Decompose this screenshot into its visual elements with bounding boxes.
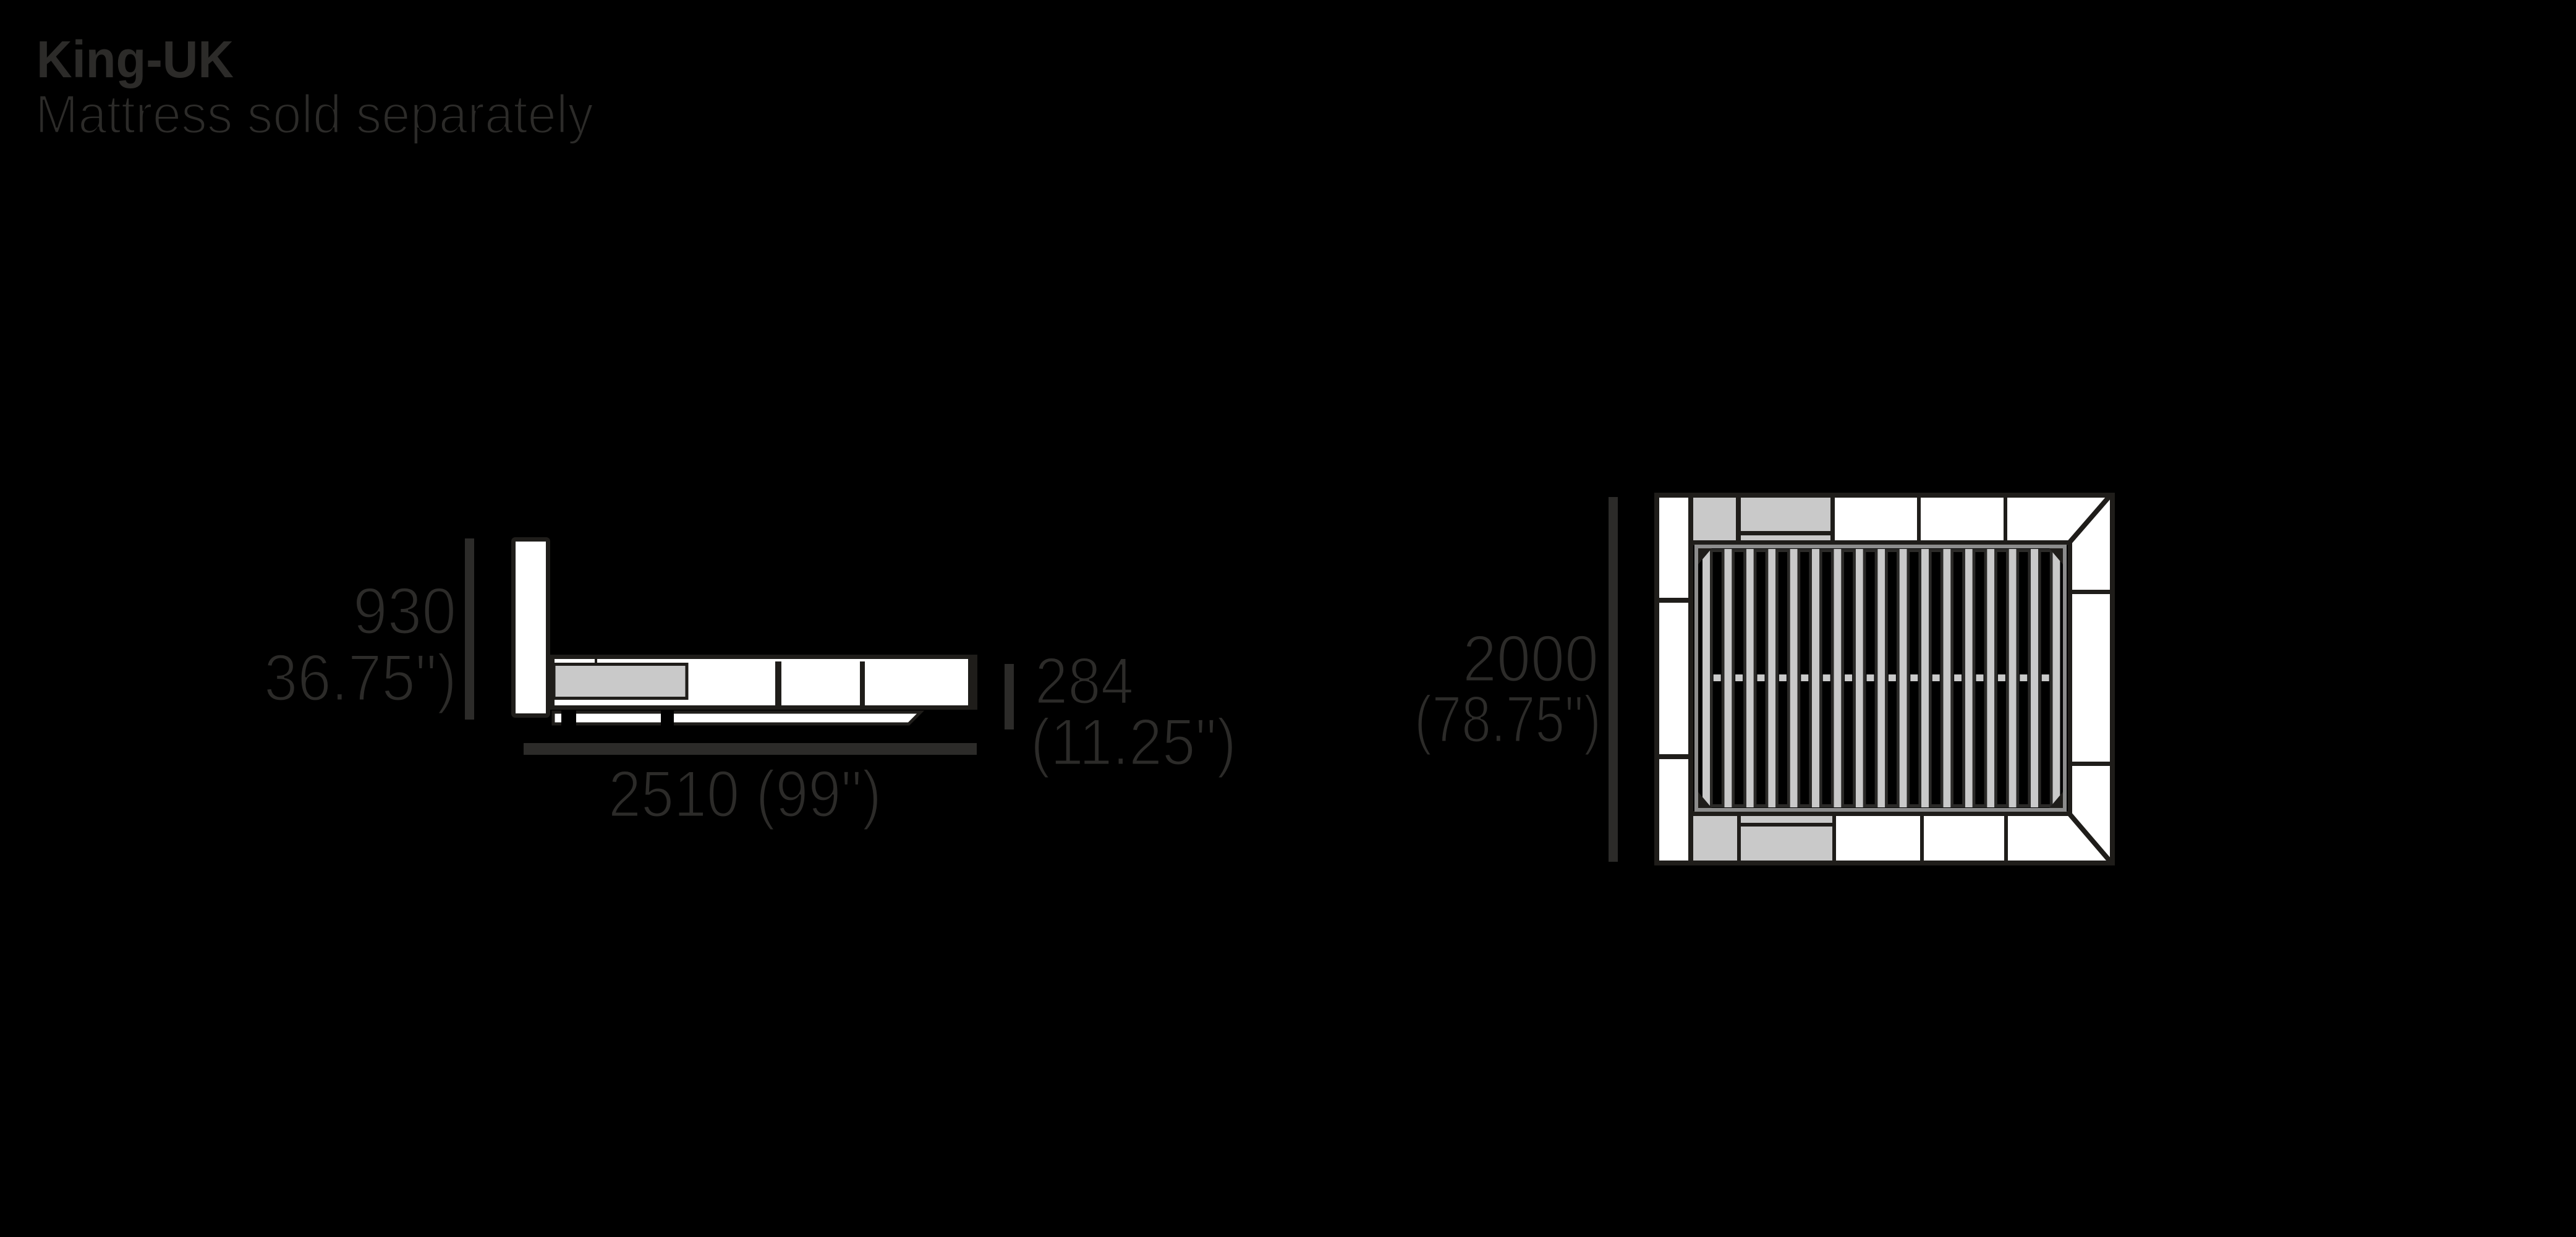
svg-text:36.75"): 36.75") bbox=[264, 640, 457, 715]
svg-text:2510 (99"): 2510 (99") bbox=[608, 757, 882, 831]
svg-text:King-UK: King-UK bbox=[36, 30, 234, 88]
svg-text:Mattress sold separately: Mattress sold separately bbox=[35, 83, 593, 145]
svg-text:930: 930 bbox=[353, 574, 456, 648]
svg-text:(78.75"): (78.75") bbox=[1414, 682, 1601, 756]
svg-text:(11.25"): (11.25") bbox=[1031, 705, 1236, 779]
